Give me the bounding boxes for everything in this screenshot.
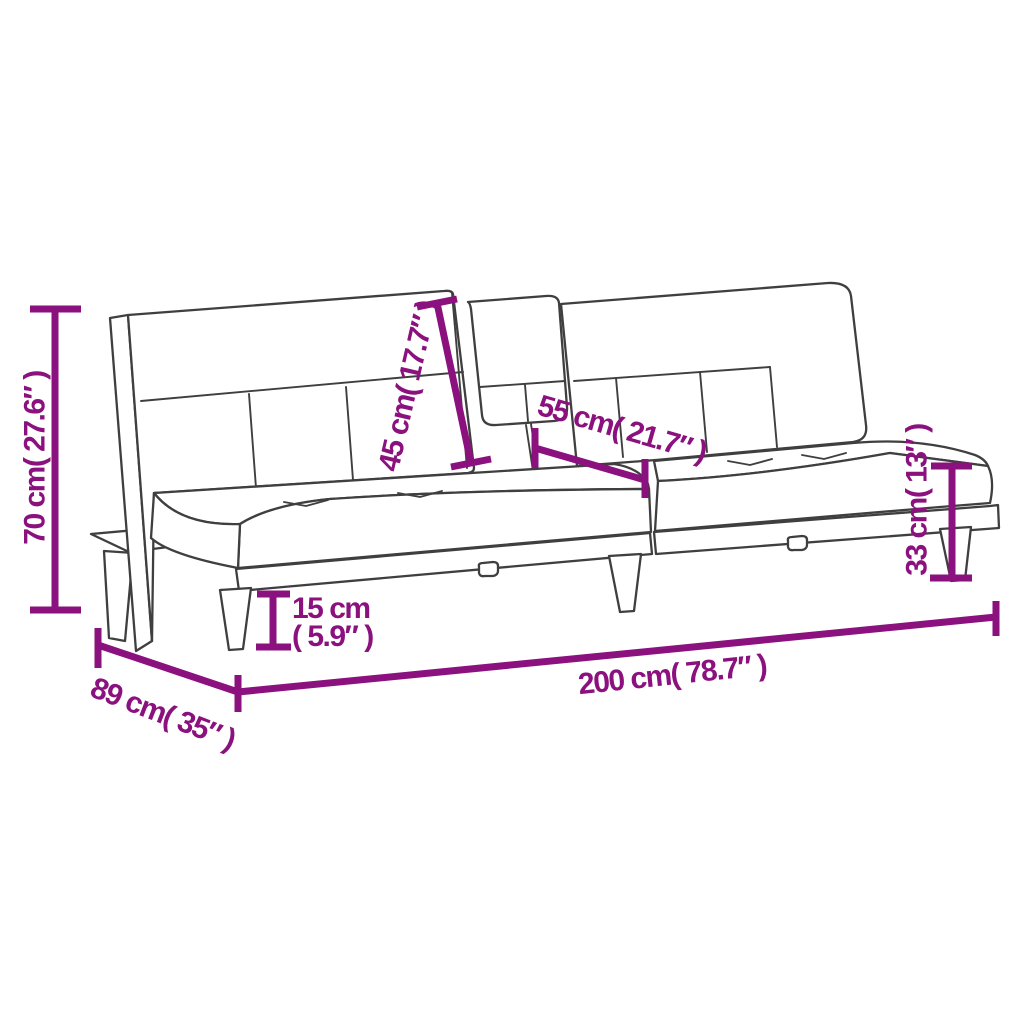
center-leg xyxy=(609,554,641,612)
dimension-leg-height xyxy=(256,594,291,647)
product-dimension-diagram: 70 cm( 27.6″ ) 45 cm( 17.7″ ) 55 cm( 21.… xyxy=(0,0,1024,1024)
label-leg-height-line2: ( 5.9″ ) xyxy=(292,620,373,653)
sofa-line-art xyxy=(91,283,999,651)
rail-tab-left xyxy=(479,562,498,576)
label-seat-height: 33 cm( 13″ ) xyxy=(901,424,934,576)
front-left-leg xyxy=(220,588,251,650)
label-overall-height: 70 cm( 27.6″ ) xyxy=(19,371,52,545)
rail-tab-right xyxy=(788,536,807,550)
